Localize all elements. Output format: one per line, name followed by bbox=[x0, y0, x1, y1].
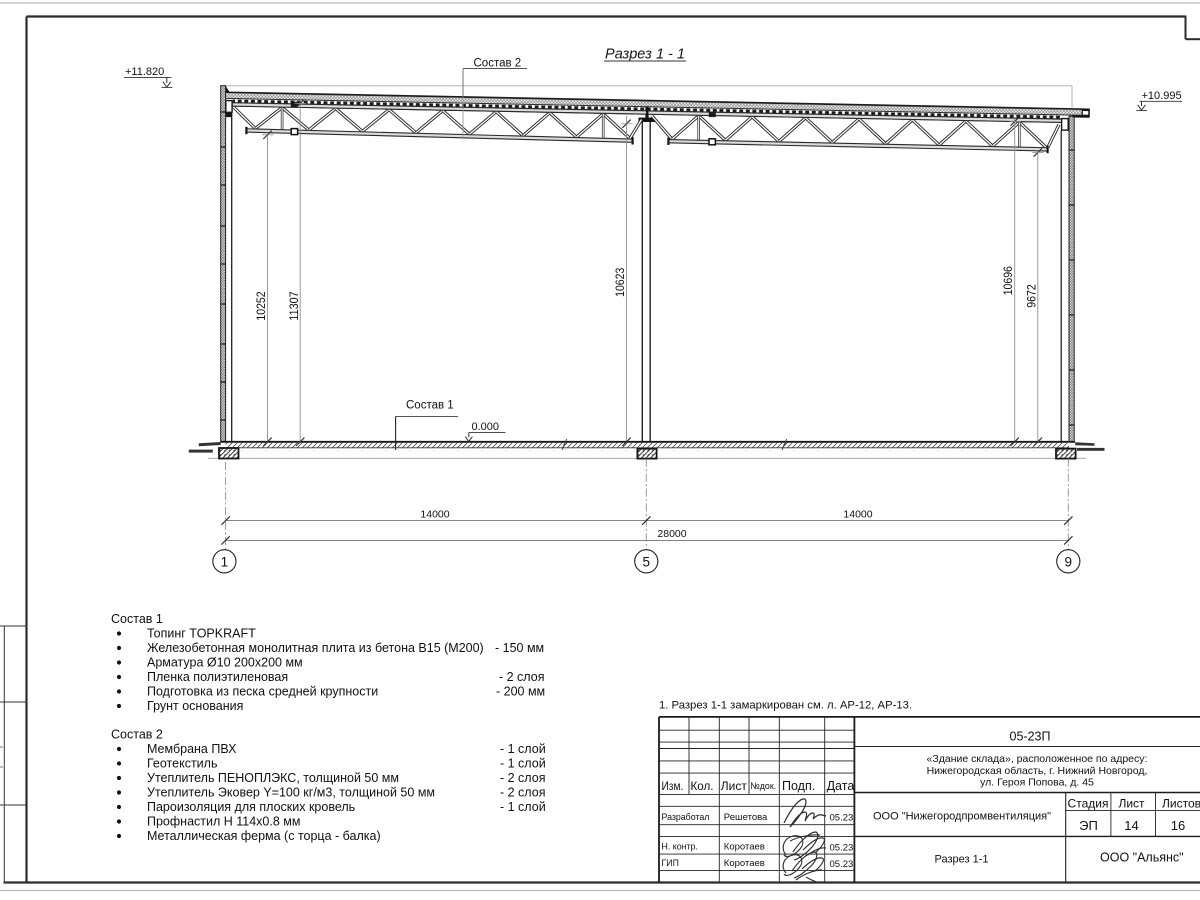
svg-text:Разрез 1-1: Разрез 1-1 bbox=[934, 854, 988, 866]
svg-text:Состав 1: Состав 1 bbox=[406, 399, 454, 411]
svg-text:Подготовка из песка средней кр: Подготовка из песка средней крупности bbox=[147, 685, 378, 699]
svg-text:ул. Героя Попова, д. 45: ул. Героя Попова, д. 45 bbox=[980, 777, 1094, 789]
svg-text:1. Разрез 1-1 замаркирован см.: 1. Разрез 1-1 замаркирован см. л. АР-12,… bbox=[659, 700, 912, 712]
svg-text:14000: 14000 bbox=[843, 508, 872, 520]
svg-text:Подп.: Подп. bbox=[782, 779, 815, 793]
svg-text:Разрез 1 - 1: Разрез 1 - 1 bbox=[605, 46, 685, 62]
svg-text:Мембрана ПВХ: Мембрана ПВХ bbox=[147, 742, 237, 756]
svg-text:Решетова: Решетова bbox=[724, 812, 768, 823]
svg-text:0.000: 0.000 bbox=[472, 421, 500, 433]
svg-text:10696: 10696 bbox=[1001, 266, 1015, 295]
svg-text:Грунт основания: Грунт основания bbox=[147, 699, 243, 713]
svg-text:- 2 слоя: - 2 слоя bbox=[499, 670, 544, 684]
svg-text:Состав 2: Состав 2 bbox=[474, 57, 522, 69]
svg-text:1: 1 bbox=[221, 554, 229, 569]
svg-text:5: 5 bbox=[643, 554, 651, 569]
svg-text:Разработал: Разработал bbox=[662, 812, 710, 822]
svg-text:05.23: 05.23 bbox=[830, 812, 854, 823]
svg-text:Железобетонная монолитная плит: Железобетонная монолитная плита из бетон… bbox=[147, 641, 484, 655]
svg-text:05-23П: 05-23П bbox=[1010, 729, 1051, 743]
svg-text:Нижегородская область, г. Нижн: Нижегородская область, г. Нижний Новгоро… bbox=[927, 765, 1148, 777]
svg-text:Состав 1: Состав 1 bbox=[111, 612, 163, 626]
svg-text:- 1 слой: - 1 слой bbox=[500, 742, 546, 756]
svg-text:9: 9 bbox=[1065, 554, 1073, 569]
svg-text:05.23: 05.23 bbox=[830, 842, 854, 853]
svg-text:ООО "Альянс": ООО "Альянс" bbox=[1100, 850, 1184, 864]
svg-text:Состав 2: Состав 2 bbox=[111, 728, 163, 742]
svg-text:10252: 10252 bbox=[254, 291, 268, 320]
svg-text:9672: 9672 bbox=[1024, 284, 1038, 308]
svg-text:- 150 мм: - 150 мм bbox=[495, 641, 544, 655]
svg-text:- 1 слой: - 1 слой bbox=[500, 800, 546, 814]
svg-text:Стадия: Стадия bbox=[1068, 797, 1109, 811]
svg-text:Лист: Лист bbox=[1118, 797, 1145, 811]
svg-text:Кол.: Кол. bbox=[691, 779, 714, 793]
svg-text:Утеплитель ПЕНОПЛЭКС, толщиной: Утеплитель ПЕНОПЛЭКС, толщиной 50 мм bbox=[147, 771, 399, 785]
svg-text:05.23: 05.23 bbox=[830, 859, 854, 870]
svg-text:ЭП: ЭП bbox=[1079, 818, 1098, 833]
svg-text:«Здание склада», расположенное: «Здание склада», расположенное по адресу… bbox=[927, 753, 1148, 765]
svg-text:Профнастил Н 114х0.8 мм: Профнастил Н 114х0.8 мм bbox=[147, 815, 300, 829]
svg-text:- 2 слоя: - 2 слоя bbox=[500, 786, 545, 800]
svg-text:16: 16 bbox=[1171, 818, 1185, 833]
svg-text:11307: 11307 bbox=[287, 291, 301, 320]
svg-text:Пароизоляция для плоских крове: Пароизоляция для плоских кровель bbox=[147, 800, 355, 814]
svg-text:Изм.: Изм. bbox=[662, 779, 684, 793]
svg-text:10623: 10623 bbox=[613, 267, 627, 296]
svg-text:14: 14 bbox=[1124, 818, 1138, 833]
svg-text:ООО "Нижегородпромвентиляция": ООО "Нижегородпромвентиляция" bbox=[873, 811, 1051, 823]
svg-text:Геотекстиль: Геотекстиль bbox=[147, 757, 217, 771]
svg-text:Пленка полиэтиленовая: Пленка полиэтиленовая bbox=[147, 670, 288, 684]
svg-text:Листов: Листов bbox=[1162, 797, 1200, 811]
svg-text:Утеплитель Эковер Y=100 кг/м3,: Утеплитель Эковер Y=100 кг/м3, толщиной … bbox=[147, 786, 435, 800]
svg-text:28000: 28000 bbox=[657, 528, 686, 540]
svg-text:Лист: Лист bbox=[721, 779, 747, 793]
svg-text:№док.: №док. bbox=[750, 781, 776, 792]
svg-text:Арматура Ø10 200х200 мм: Арматура Ø10 200х200 мм bbox=[147, 656, 303, 670]
svg-text:- 1 слой: - 1 слой bbox=[500, 757, 546, 771]
svg-text:ГИП: ГИП bbox=[662, 858, 679, 868]
svg-text:14000: 14000 bbox=[420, 508, 449, 520]
svg-text:Коротаев: Коротаев bbox=[724, 841, 765, 852]
svg-text:Дата: Дата bbox=[827, 779, 855, 793]
svg-text:+11.820: +11.820 bbox=[125, 66, 164, 78]
svg-text:+10.995: +10.995 bbox=[1142, 90, 1182, 102]
svg-text:Н. контр.: Н. контр. bbox=[662, 841, 698, 851]
svg-text:- 2 слоя: - 2 слоя bbox=[500, 771, 545, 785]
svg-text:Металлическая ферма (с торца -: Металлическая ферма (с торца - балка) bbox=[147, 829, 381, 843]
svg-text:Коротаев: Коротаев bbox=[724, 858, 765, 869]
svg-text:- 200 мм: - 200 мм bbox=[496, 685, 545, 699]
svg-text:Топинг TOPKRAFT: Топинг TOPKRAFT bbox=[147, 627, 256, 641]
